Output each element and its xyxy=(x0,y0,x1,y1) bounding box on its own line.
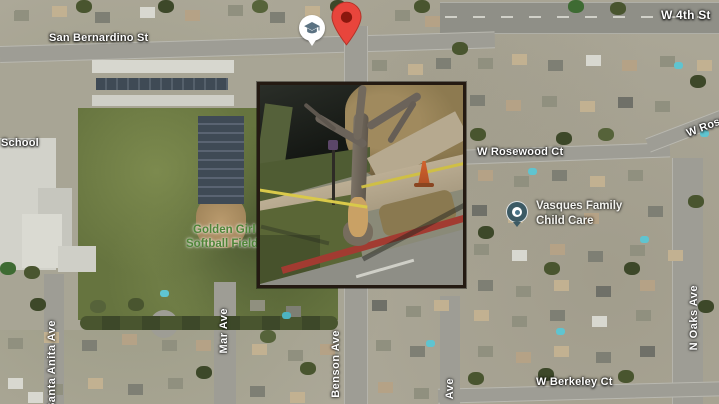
graduation-cap-icon xyxy=(303,19,321,37)
school-solar-roof xyxy=(198,116,244,204)
inset-photo[interactable] xyxy=(257,82,466,288)
childcare-pin-tail xyxy=(513,222,521,227)
street-label-w-rosewood: W Rosewood Ct xyxy=(477,146,563,158)
street-label-san-bernardino: San Bernardino St xyxy=(49,32,148,44)
photo-sign xyxy=(328,140,338,150)
school-building xyxy=(92,60,234,73)
place-label-school: School xyxy=(1,137,39,149)
place-label-softball-line2: Softball Field xyxy=(186,238,258,250)
pool-stamp xyxy=(0,0,9,7)
school-poi-icon[interactable] xyxy=(299,15,325,47)
childcare-poi-icon[interactable] xyxy=(506,201,528,228)
street-label-santa-anita: Santa Anita Ave xyxy=(46,320,58,404)
school-building xyxy=(58,246,96,272)
photo-sign-post xyxy=(332,143,335,205)
street-label-w-4th: W 4th St xyxy=(661,8,711,22)
school-building xyxy=(92,95,234,106)
location-marker-pin[interactable] xyxy=(331,1,362,51)
road-n-oaks-ave xyxy=(672,158,703,404)
childcare-pin-dot xyxy=(515,210,520,215)
street-label-w-berkeley: W Berkeley Ct xyxy=(536,376,613,388)
campus-tree-row xyxy=(80,316,338,330)
street-label-n-oaks: N Oaks Ave xyxy=(688,285,700,350)
school-pin-tail xyxy=(308,40,316,46)
childcare-label-line1[interactable]: Vasques Family xyxy=(536,200,622,212)
photo-cone-base xyxy=(414,183,434,187)
childcare-label-line2[interactable]: Child Care xyxy=(536,215,594,227)
street-label-mar: Mar Ave xyxy=(218,308,230,353)
street-label-benson: Benson Ave xyxy=(330,330,342,398)
red-pin-icon xyxy=(331,1,362,46)
school-building xyxy=(22,214,62,268)
satellite-map[interactable]: San Bernardino St W 4th St W Rosewood Ct… xyxy=(0,0,719,404)
place-label-softball-line1: Golden Girl xyxy=(193,224,256,236)
school-solar-roof xyxy=(96,78,228,90)
street-label-partial-ave: Ave xyxy=(444,378,456,399)
